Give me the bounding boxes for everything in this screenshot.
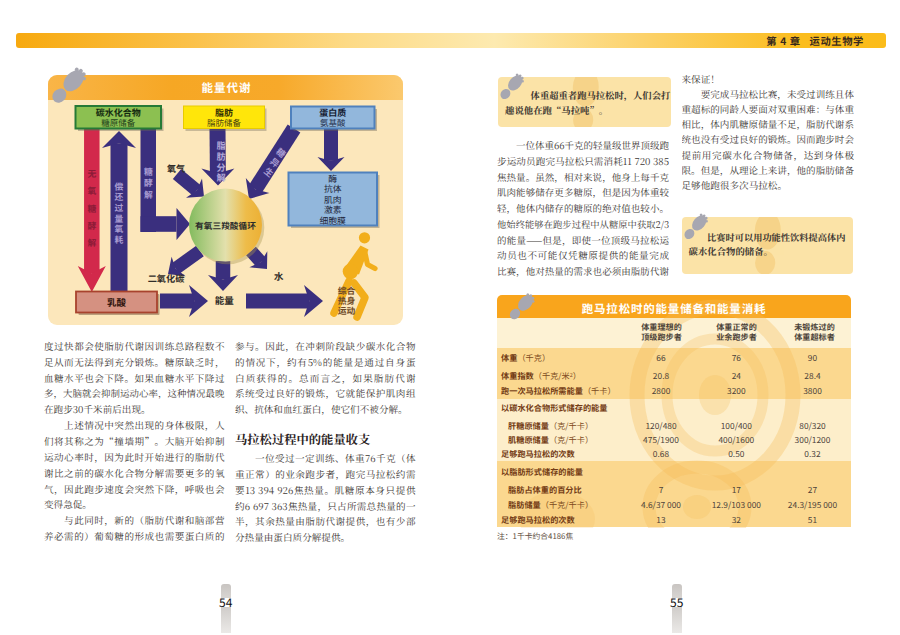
svg-text:脂肪储备: 脂肪储备 <box>207 116 242 128</box>
svg-text:解: 解 <box>87 236 96 249</box>
svg-text:氨基酸: 氨基酸 <box>320 116 346 128</box>
svg-text:糖原储备: 糖原储备 <box>101 116 136 128</box>
svg-text:能量: 能量 <box>215 293 235 307</box>
svg-text:运动: 运动 <box>338 304 356 317</box>
svg-text:糖: 糖 <box>87 202 96 215</box>
svg-text:耗: 耗 <box>115 233 124 246</box>
svg-text:细胞膜: 细胞膜 <box>319 214 346 227</box>
svg-text:氧气: 氧气 <box>167 162 185 175</box>
svg-text:解: 解 <box>216 170 225 184</box>
svg-text:有氧三羧酸循环: 有氧三羧酸循环 <box>195 219 256 232</box>
svg-text:酵: 酵 <box>87 219 96 232</box>
svg-text:乳酸: 乳酸 <box>107 295 127 309</box>
svg-text:水: 水 <box>274 269 284 283</box>
svg-text:无: 无 <box>87 167 96 180</box>
svg-text:解: 解 <box>144 188 153 201</box>
svg-text:二氧化碳: 二氧化碳 <box>148 271 186 285</box>
svg-text:能量代谢: 能量代谢 <box>202 79 252 95</box>
svg-text:氧: 氧 <box>87 184 96 197</box>
